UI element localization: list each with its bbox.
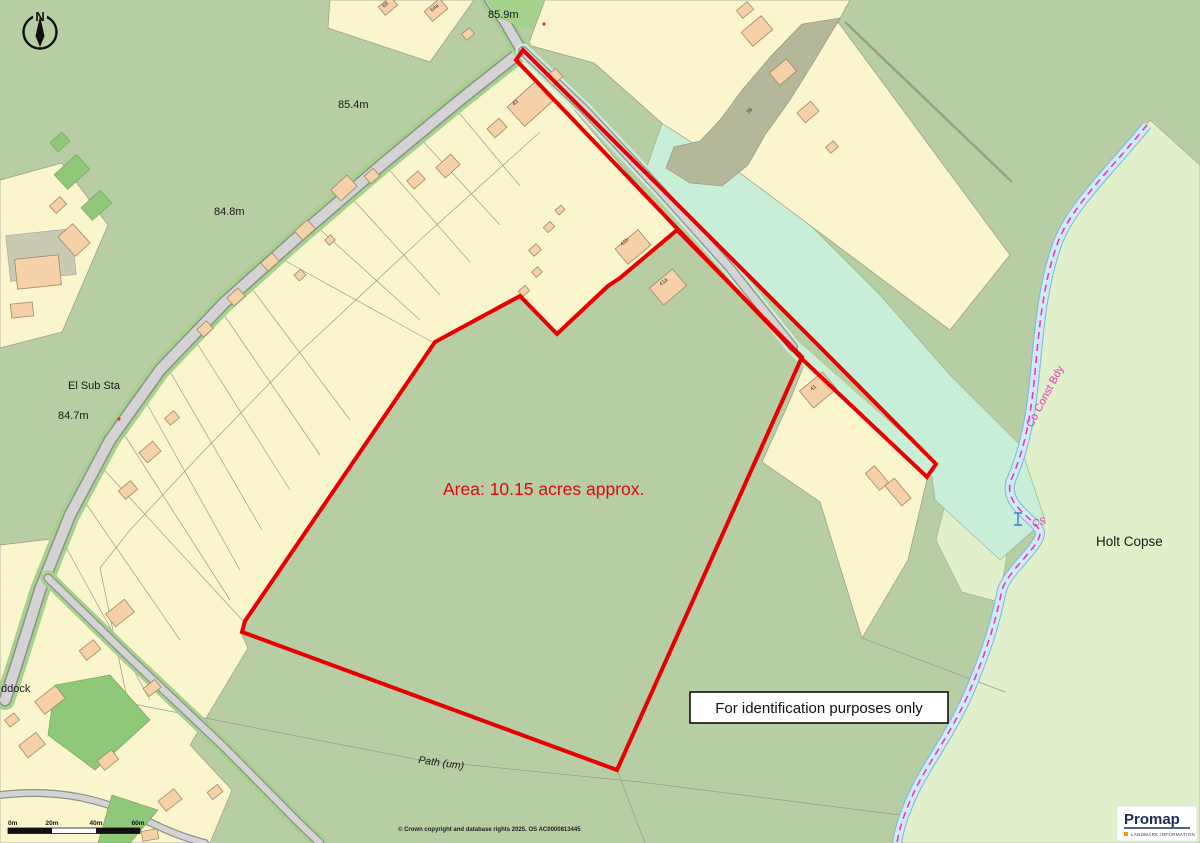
survey-dot — [542, 22, 545, 25]
promap-brand: Promap — [1124, 811, 1180, 828]
el-sub-sta-label: El Sub Sta — [68, 380, 121, 392]
scale-bar-seg2 — [96, 828, 140, 834]
paddock-label: ddock — [1, 683, 31, 695]
copyright-text: © Crown copyright and database rights 20… — [398, 826, 581, 833]
scale-60m: 60m — [131, 820, 144, 827]
scale-0m: 0m — [8, 820, 18, 827]
identification-box-text: For identification purposes only — [715, 700, 923, 717]
area-label: Area: 10.15 acres approx. — [443, 479, 644, 499]
map-viewport: 85.9m 85.4m 84.8m 84.7m El Sub Sta ddock… — [0, 0, 1200, 843]
survey-dot — [117, 417, 120, 420]
holt-copse-label: Holt Copse — [1096, 534, 1163, 549]
promap-logo: Promap LANDMARK INFORMATION — [1117, 806, 1197, 841]
spot-height-859: 85.9m — [488, 9, 519, 21]
scale-bar-seg1 — [8, 828, 52, 834]
promap-bullet-icon — [1124, 832, 1128, 836]
scale-40m: 40m — [89, 820, 102, 827]
spot-height-847: 84.7m — [58, 410, 89, 422]
north-arrow-n: N — [35, 9, 44, 24]
ordnance-map: 85.9m 85.4m 84.8m 84.7m El Sub Sta ddock… — [0, 0, 1200, 843]
spot-height-854: 85.4m — [338, 99, 369, 111]
spot-height-848: 84.8m — [214, 206, 245, 218]
promap-sub: LANDMARK INFORMATION — [1131, 832, 1195, 837]
scale-20m: 20m — [45, 820, 58, 827]
identification-box: For identification purposes only — [690, 692, 948, 723]
